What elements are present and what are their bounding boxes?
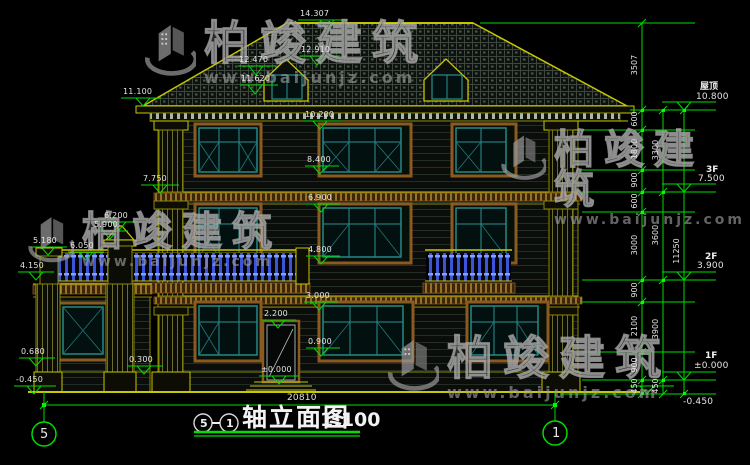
- floor-1f-value: ±0.000: [694, 362, 729, 371]
- elev-porch-deck: 4.150: [20, 262, 44, 270]
- dim-c1-900b: 900: [631, 270, 639, 310]
- floor-3f-value: 7.500: [698, 175, 725, 184]
- dim-c2-450: 450: [652, 366, 660, 406]
- elev-gate-cap-base: 5.900: [94, 221, 118, 229]
- elev-door-zero: ±0.000: [261, 366, 292, 374]
- elev-dormer-ridge: 12.910: [301, 46, 330, 54]
- elev-band-3f: 7.750: [143, 175, 167, 183]
- elev-cornice-3f: 10.200: [305, 111, 334, 119]
- dim-c2-3600: 3600: [652, 215, 660, 255]
- cad-elevation-screenshot: 柏竣建筑 www.baijunjz.com 柏竣建筑 www.baijunjz.…: [0, 0, 750, 465]
- elev-door-head: 2.200: [264, 310, 288, 318]
- elev-peak: 14.307: [300, 10, 329, 18]
- drawing-scale: 1:100: [320, 411, 380, 430]
- elev-win2-head: 6.900: [308, 194, 332, 202]
- windows-1f: [195, 302, 548, 361]
- elev-porch-wall: 0.680: [21, 348, 45, 356]
- porch: [33, 226, 152, 392]
- dim-c1-2100: 2100: [631, 306, 639, 346]
- dim-c1-600b: 600: [631, 181, 639, 221]
- dim-c2-3900: 3900: [652, 309, 660, 349]
- elev-win1-head: 3.000: [306, 292, 330, 300]
- floor-roof-label: 屋顶: [700, 83, 718, 92]
- eave-cornice: [136, 106, 634, 121]
- dim-c1-3000: 3000: [631, 225, 639, 265]
- dim-overall-width: 20810: [287, 394, 317, 403]
- floor-1f-label: 1F: [705, 352, 717, 361]
- elev-win1-sill: 0.900: [308, 338, 332, 346]
- windows-3f: [195, 124, 516, 176]
- elev-left-eave: 11.100: [123, 88, 152, 96]
- elev-dormer-sill: 11.620: [241, 75, 270, 83]
- floor-site-value: -0.450: [683, 398, 713, 407]
- floor-2f-value: 3.900: [697, 262, 724, 271]
- elev-gate-cap: 6.200: [104, 212, 128, 220]
- roof: [143, 23, 627, 106]
- floor-roof-value: 10.800: [696, 93, 729, 102]
- elev-porch-rail: 6.050: [70, 242, 94, 250]
- dim-c3-11250: 11250: [673, 231, 681, 271]
- dim-c1-3507: 3507: [631, 45, 639, 85]
- axis-bubble-left-digit: 5: [40, 428, 48, 441]
- elev-porch-post: 5.180: [33, 237, 57, 245]
- title-axis-right: 1: [226, 418, 234, 429]
- elev-win3-sill: 8.400: [307, 156, 331, 164]
- balcony-right: [423, 250, 515, 293]
- elev-dormer-eave: 12.470: [239, 56, 268, 64]
- elev-ground-left: -0.450: [16, 376, 43, 384]
- dim-c1-450: 450: [631, 366, 639, 406]
- dim-c2-3300: 3300: [652, 130, 660, 170]
- axis-bubble-right-digit: 1: [552, 427, 560, 440]
- title-axis-left: 5: [200, 418, 208, 429]
- elev-win2-sill: 4.800: [308, 246, 332, 254]
- elev-plinth: 0.300: [129, 356, 153, 364]
